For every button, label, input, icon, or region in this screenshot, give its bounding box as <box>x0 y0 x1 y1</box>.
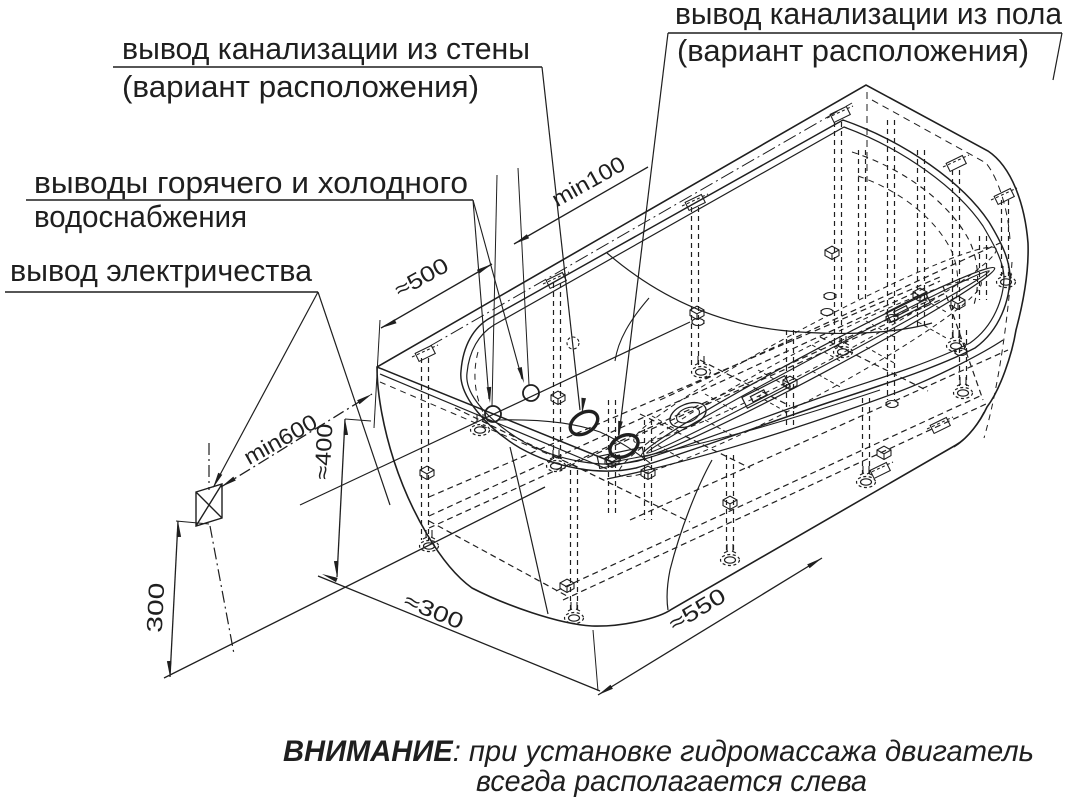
svg-text:ВНИМАНИЕ: при установке гидром: ВНИМАНИЕ: при установке гидромассажа дви… <box>283 735 1034 768</box>
svg-text:(вариант расположения): (вариант расположения) <box>122 69 479 104</box>
svg-text:выводы горячего и холодного: выводы горячего и холодного <box>34 165 468 200</box>
svg-text:300: 300 <box>142 582 170 633</box>
svg-text:вывод канализации из пола: вывод канализации из пола <box>675 0 1063 31</box>
svg-text:всегда располагается слева: всегда располагается слева <box>476 765 867 798</box>
svg-text:вывод электричества: вывод электричества <box>10 253 313 288</box>
svg-text:вывод канализации из стены: вывод канализации из стены <box>122 31 530 66</box>
svg-text:(вариант расположения): (вариант расположения) <box>677 33 1029 68</box>
svg-text:водоснабжения: водоснабжения <box>34 199 247 234</box>
svg-text:≈400: ≈400 <box>310 423 338 480</box>
